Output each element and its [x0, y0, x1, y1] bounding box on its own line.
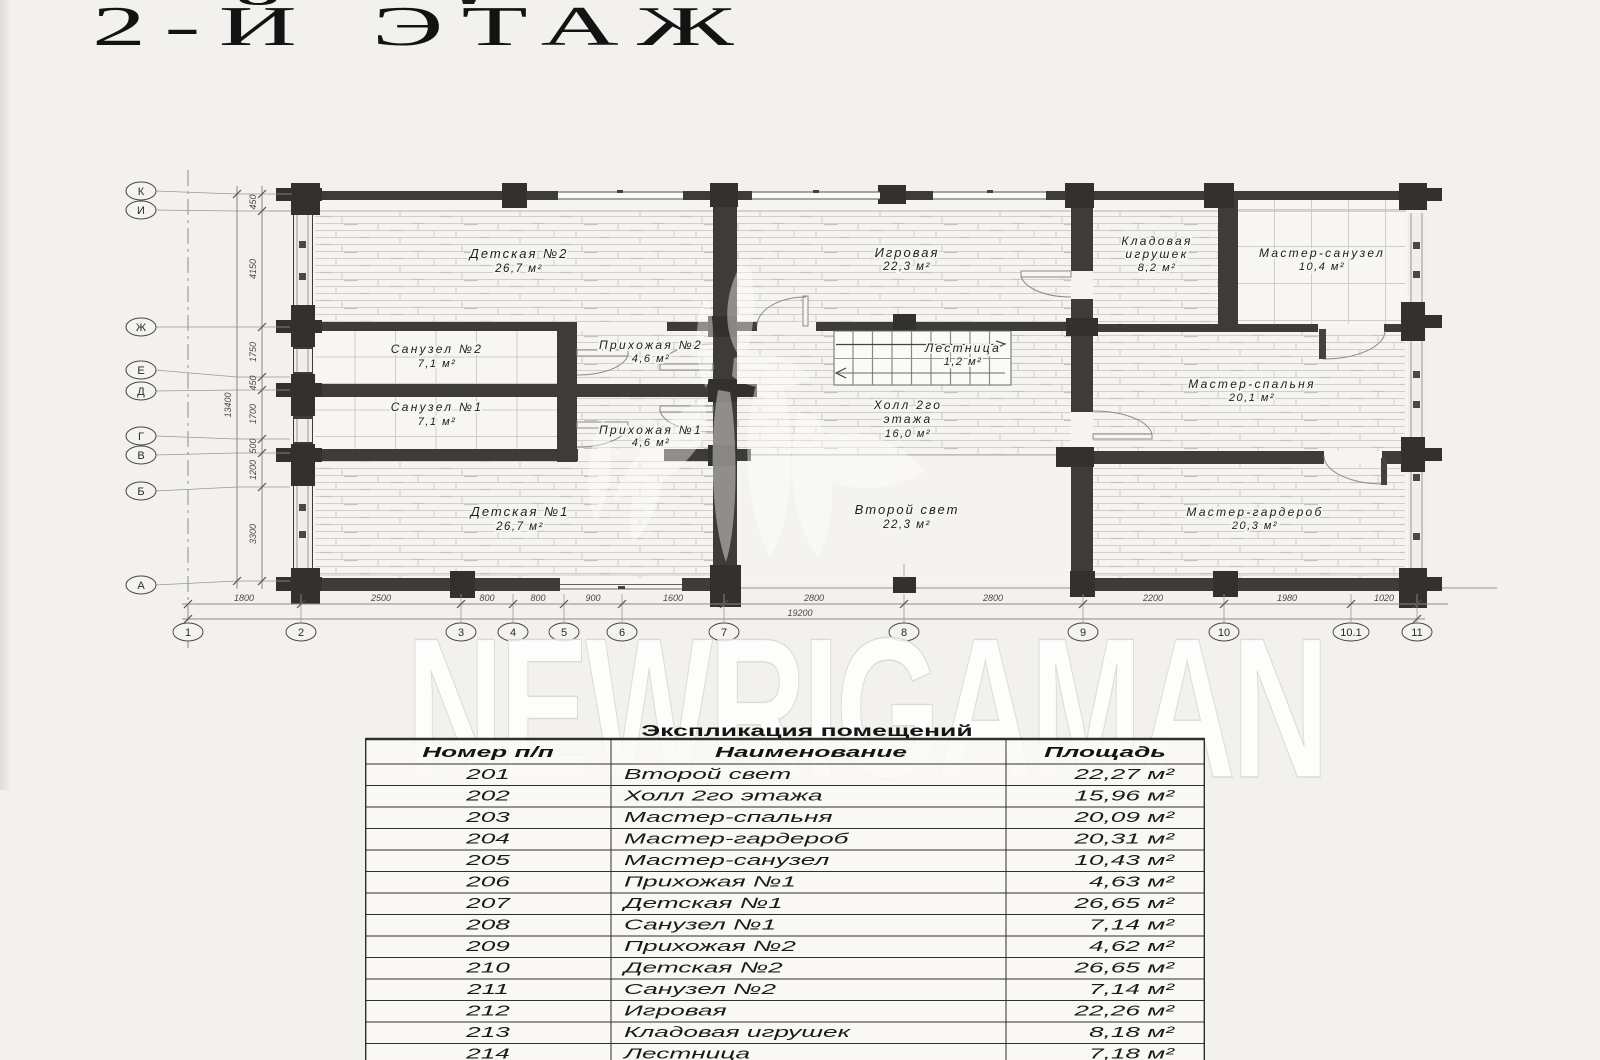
- svg-text:201: 201: [465, 766, 510, 783]
- svg-text:207: 207: [465, 895, 511, 912]
- svg-text:26,65 м²: 26,65 м²: [1073, 959, 1175, 976]
- svg-text:Мастер-спальня: Мастер-спальня: [624, 809, 832, 826]
- svg-text:Кладовая: Кладовая: [1121, 234, 1192, 248]
- svg-text:Лестница: Лестница: [924, 341, 1001, 355]
- svg-text:4,6 м²: 4,6 м²: [632, 437, 671, 449]
- svg-text:Прихожая №2: Прихожая №2: [599, 338, 703, 352]
- svg-text:10,4 м²: 10,4 м²: [1299, 261, 1345, 273]
- svg-text:13400: 13400: [223, 392, 233, 417]
- svg-text:Санузел №2: Санузел №2: [624, 981, 776, 998]
- svg-text:Детская №2: Детская №2: [622, 959, 783, 976]
- svg-text:Детская №2: Детская №2: [468, 246, 569, 261]
- svg-text:1: 1: [185, 627, 191, 639]
- svg-text:203: 203: [465, 809, 510, 826]
- svg-text:Ж: Ж: [136, 322, 146, 334]
- svg-text:Санузел №2: Санузел №2: [391, 342, 484, 356]
- svg-text:игрушек: игрушек: [1125, 247, 1188, 261]
- svg-text:Второй свет: Второй свет: [624, 766, 791, 783]
- svg-text:212: 212: [465, 1002, 510, 1019]
- svg-text:20,09 м²: 20,09 м²: [1073, 809, 1175, 826]
- svg-text:А: А: [137, 580, 145, 592]
- svg-text:20,1 м²: 20,1 м²: [1228, 392, 1275, 404]
- svg-text:Номер п/п: Номер п/п: [422, 744, 554, 761]
- svg-text:2: 2: [298, 627, 304, 639]
- svg-text:Б: Б: [137, 486, 144, 498]
- svg-text:Мастер-спальня: Мастер-спальня: [1188, 377, 1316, 391]
- svg-text:11: 11: [1411, 627, 1422, 639]
- svg-text:Второй свет: Второй свет: [855, 502, 960, 517]
- svg-text:Г: Г: [138, 431, 144, 443]
- svg-text:26,7 м²: 26,7 м²: [495, 521, 544, 533]
- svg-text:1,2 м²: 1,2 м²: [944, 356, 983, 368]
- svg-text:Наименование: Наименование: [715, 744, 907, 761]
- svg-text:Экспликация помещений: Экспликация помещений: [641, 721, 972, 739]
- svg-text:20,31 м²: 20,31 м²: [1073, 830, 1175, 847]
- svg-text:Детская №1: Детская №1: [622, 895, 783, 912]
- svg-text:204: 204: [465, 830, 510, 847]
- svg-text:1200: 1200: [248, 460, 258, 480]
- svg-text:202: 202: [465, 787, 510, 804]
- svg-text:Мастер-санузел: Мастер-санузел: [1259, 246, 1385, 260]
- svg-text:211: 211: [466, 981, 509, 998]
- svg-text:7,14 м²: 7,14 м²: [1089, 916, 1175, 933]
- svg-text:7,1 м²: 7,1 м²: [418, 416, 457, 428]
- svg-text:1800: 1800: [234, 593, 254, 603]
- svg-text:209: 209: [465, 938, 510, 955]
- svg-text:210: 210: [465, 959, 510, 976]
- svg-text:8,2 м²: 8,2 м²: [1138, 262, 1177, 274]
- svg-text:7,14 м²: 7,14 м²: [1089, 981, 1175, 998]
- svg-text:8,18 м²: 8,18 м²: [1089, 1024, 1175, 1041]
- svg-text:22,3 м²: 22,3 м²: [882, 261, 931, 273]
- svg-text:15,96 м²: 15,96 м²: [1074, 787, 1175, 804]
- svg-text:213: 213: [465, 1024, 510, 1041]
- svg-text:26,7 м²: 26,7 м²: [494, 263, 543, 275]
- svg-text:20,3 м²: 20,3 м²: [1231, 520, 1278, 532]
- svg-text:Лестница: Лестница: [622, 1045, 751, 1060]
- svg-text:1700: 1700: [248, 404, 258, 424]
- svg-text:Холл 2го этажа: Холл 2го этажа: [623, 787, 823, 804]
- svg-text:10.1: 10.1: [1340, 627, 1361, 639]
- svg-text:Прихожая №1: Прихожая №1: [599, 423, 703, 437]
- svg-text:208: 208: [465, 916, 510, 933]
- svg-text:206: 206: [465, 873, 510, 890]
- svg-text:Прихожая №1: Прихожая №1: [624, 873, 796, 890]
- svg-text:3300: 3300: [248, 524, 258, 544]
- svg-text:Игровая: Игровая: [875, 245, 940, 260]
- svg-text:Холл 2го: Холл 2го: [873, 398, 943, 412]
- svg-text:1750: 1750: [248, 342, 258, 362]
- svg-text:450: 450: [248, 375, 258, 390]
- svg-text:2500: 2500: [370, 593, 391, 603]
- svg-text:500: 500: [248, 438, 258, 453]
- svg-text:10,43 м²: 10,43 м²: [1074, 852, 1175, 869]
- svg-text:450: 450: [248, 194, 258, 209]
- svg-text:4,6 м²: 4,6 м²: [632, 353, 671, 365]
- svg-text:Мастер-гардероб: Мастер-гардероб: [1186, 505, 1323, 519]
- svg-text:Санузел №1: Санузел №1: [391, 400, 484, 414]
- svg-text:Д: Д: [137, 386, 145, 398]
- svg-text:214: 214: [465, 1045, 510, 1060]
- svg-text:Мастер-гардероб: Мастер-гардероб: [624, 830, 850, 847]
- svg-text:Игровая: Игровая: [624, 1002, 727, 1019]
- svg-text:4,63 м²: 4,63 м²: [1089, 873, 1175, 890]
- svg-text:22,3 м²: 22,3 м²: [882, 519, 931, 531]
- svg-text:Кладовая игрушек: Кладовая игрушек: [624, 1024, 851, 1041]
- svg-text:1020: 1020: [1374, 593, 1394, 603]
- svg-text:Детская №1: Детская №1: [469, 504, 570, 519]
- svg-text:Мастер-санузел: Мастер-санузел: [624, 852, 829, 869]
- svg-text:16,0 м²: 16,0 м²: [885, 428, 931, 440]
- svg-text:В: В: [137, 450, 144, 462]
- svg-text:И: И: [137, 205, 145, 217]
- svg-text:этажа: этажа: [884, 412, 933, 426]
- svg-text:4,62 м²: 4,62 м²: [1089, 938, 1175, 955]
- svg-text:22,26 м²: 22,26 м²: [1073, 1002, 1175, 1019]
- svg-text:Е: Е: [137, 365, 144, 377]
- svg-text:22,27 м²: 22,27 м²: [1073, 766, 1175, 783]
- svg-text:7,1 м²: 7,1 м²: [418, 358, 457, 370]
- svg-text:Санузел №1: Санузел №1: [624, 916, 776, 933]
- svg-text:205: 205: [465, 852, 510, 869]
- svg-text:К: К: [138, 186, 145, 198]
- svg-text:2-Й ЭТАЖ: 2-Й ЭТАЖ: [92, 0, 752, 57]
- svg-text:7,18 м²: 7,18 м²: [1089, 1045, 1175, 1060]
- svg-text:26,65 м²: 26,65 м²: [1073, 895, 1175, 912]
- svg-text:4150: 4150: [248, 259, 258, 279]
- svg-text:Площадь: Площадь: [1044, 744, 1166, 761]
- svg-text:Прихожая №2: Прихожая №2: [624, 938, 796, 955]
